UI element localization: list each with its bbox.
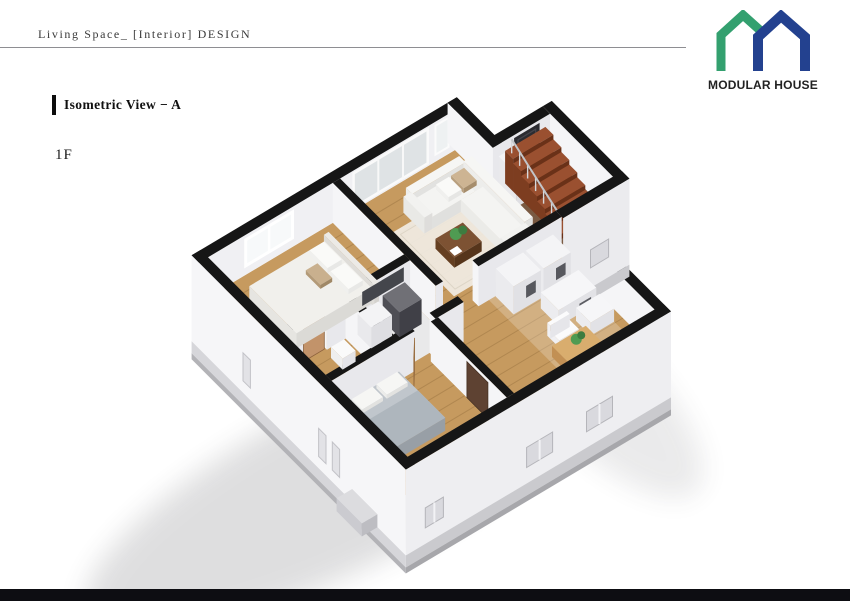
footer-bar [0, 589, 850, 601]
isometric-floor-plan-render [0, 0, 850, 601]
